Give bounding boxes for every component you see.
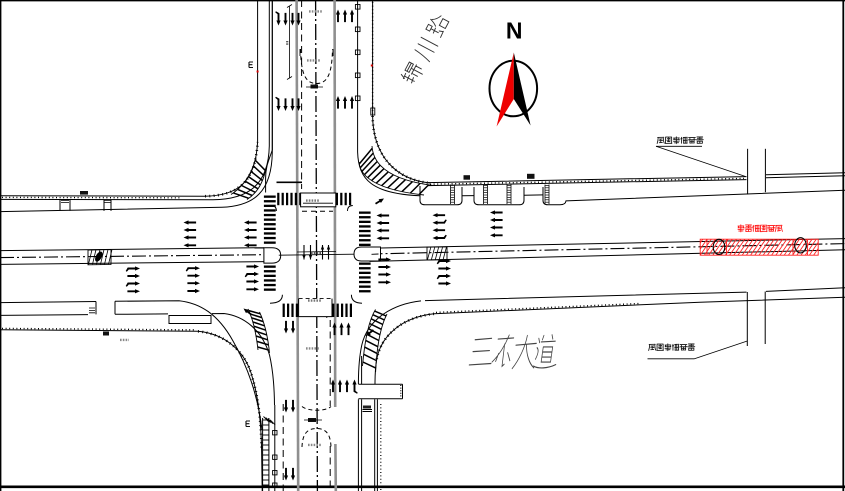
svg-text:N: N <box>506 18 523 44</box>
